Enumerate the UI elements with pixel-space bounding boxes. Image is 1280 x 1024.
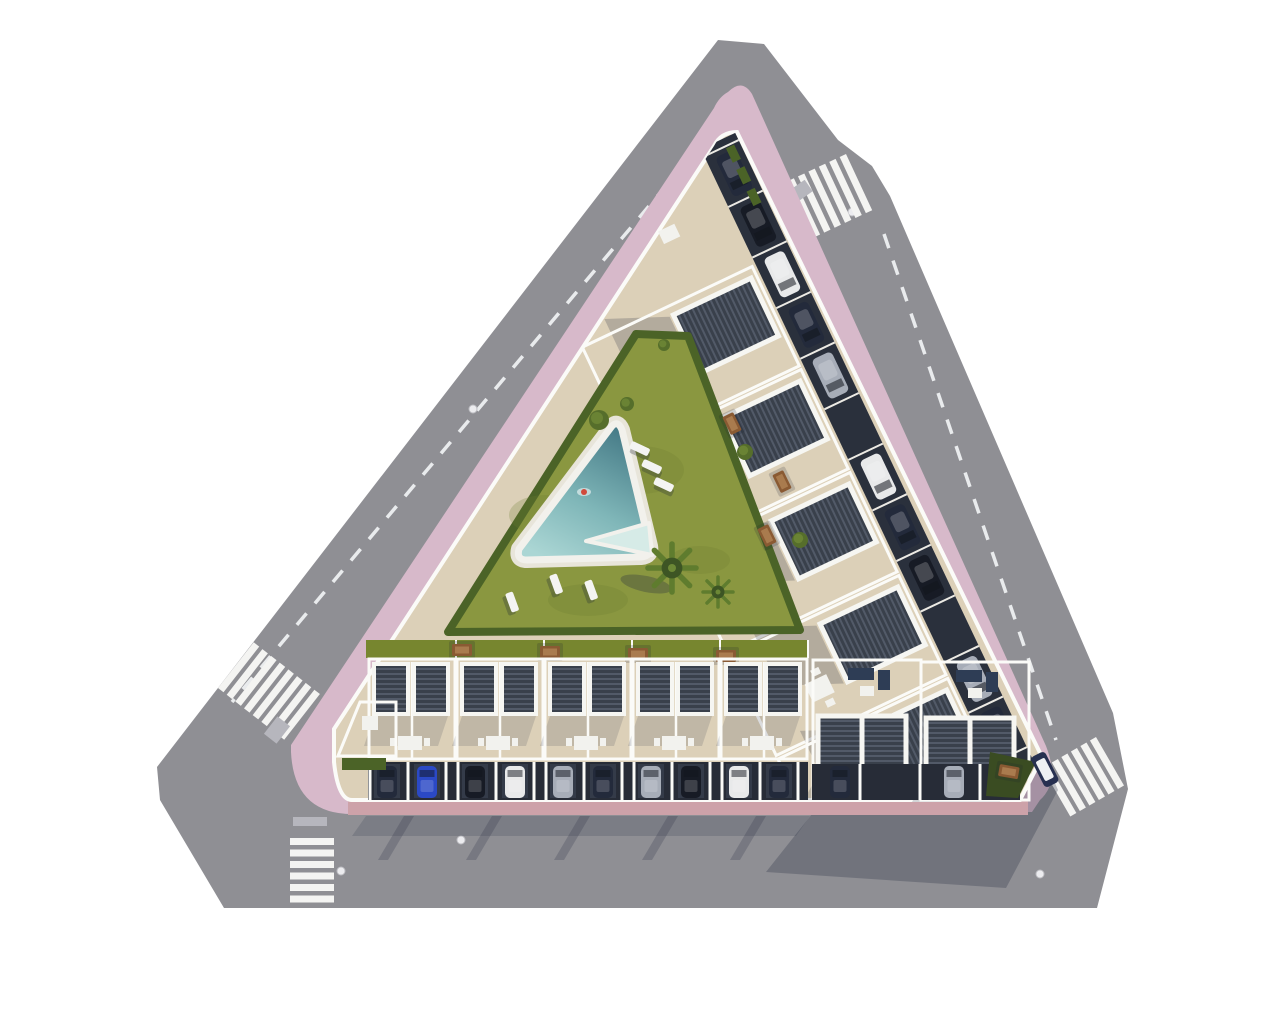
manhole-cover [1036,870,1044,878]
swimmer [577,488,591,496]
rear-garden-strip [366,640,808,658]
manhole-cover [337,867,345,875]
palm-tree [703,577,733,607]
bush [737,444,753,460]
bush [589,410,609,430]
bush [658,339,670,351]
garage-car [944,766,964,798]
dining-table [449,641,475,659]
garage-car [830,766,850,798]
bush [792,532,808,548]
garage-car [593,766,613,798]
garage-car [641,766,661,798]
garage-car [729,766,749,798]
garage-car [769,766,789,798]
site-plan-canvas [0,0,1280,1024]
south-paver-strip [348,800,1028,815]
curb-ramp [293,817,327,826]
manhole-cover [457,836,465,844]
palm-tree [648,544,696,592]
site-plan-render [0,0,1280,1024]
garage-car [505,766,525,798]
bush [620,397,634,411]
garage-car [681,766,701,798]
garage-car [553,766,573,798]
garage-car [417,766,437,798]
garage-car [377,766,397,798]
manhole-cover [469,405,477,413]
garage-car [465,766,485,798]
